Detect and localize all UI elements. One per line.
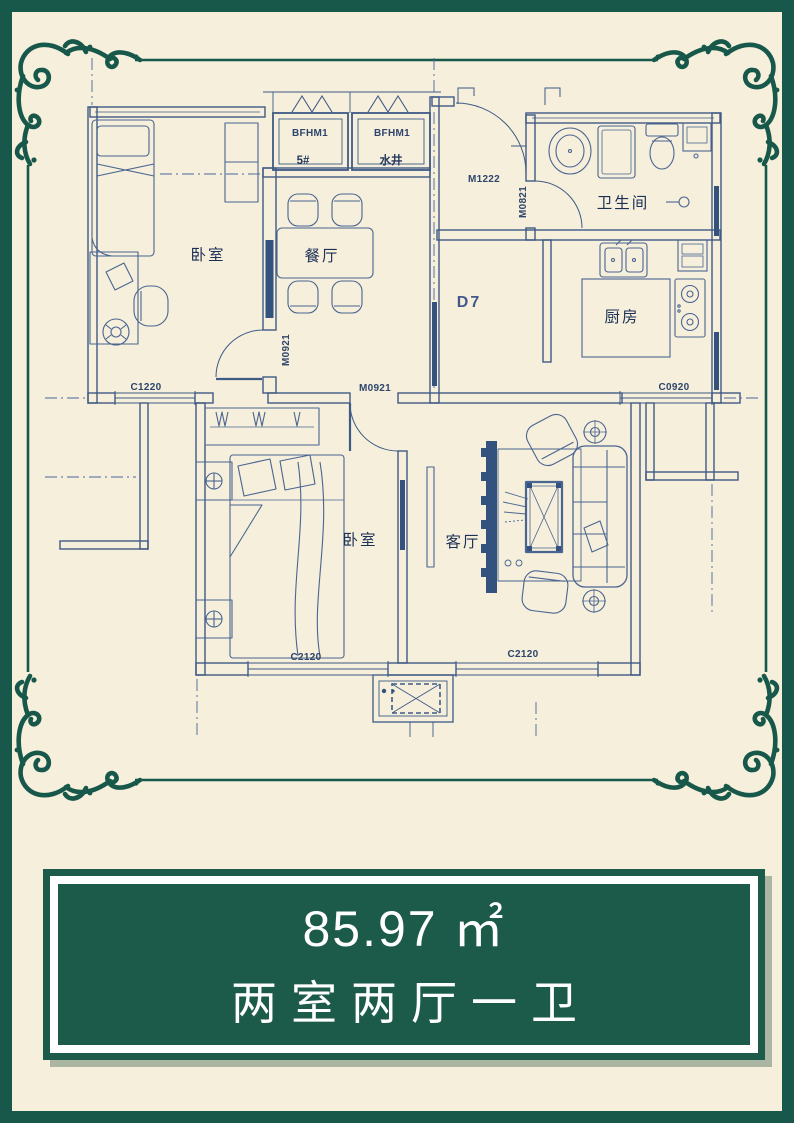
living-furniture [427,410,627,614]
double-bed [230,455,344,658]
dining-chair [332,194,362,226]
ac-platform [373,675,453,737]
door-code-bathroom: M0821 [518,186,529,218]
toilet [646,124,678,169]
washing-machine [683,123,711,158]
window-c2120-bedroom [248,661,388,677]
tv-console [427,467,434,567]
fridge [678,240,707,271]
bedside-table [196,462,232,500]
bedroom-bottom-door [350,403,398,451]
room-label-kitchen: 厨房 [604,308,639,326]
area-text: 85.97 ㎡ [302,904,505,954]
armchair [521,569,570,614]
bedroom-top-door [216,330,263,379]
room-label-bedroom-top: 卧室 [190,246,225,264]
wall-bathroom-left [526,115,535,181]
room-label-bathroom: 卫生间 [597,194,650,212]
shaft-left-name: 5# [297,155,310,167]
walls [60,88,740,675]
desk [90,252,168,345]
window-code-living: C2120 [508,649,539,660]
coffee-table [526,482,562,552]
throw-pillow [584,521,608,552]
window-code-left: C1220 [131,382,162,393]
bathroom-door-arc [535,181,582,228]
bedroom-bottom-furniture [196,408,344,658]
dining-chair [288,281,318,313]
shaft-left-label: BFHM1 [292,128,328,139]
window-code-kitchen: C0920 [659,382,690,393]
hanger-icon [216,412,228,426]
vent-zigzag-icon [368,96,408,112]
layout-text: 两室两厅一卫 [217,980,591,1026]
decor-sticks [503,492,528,566]
wall-bathroom-bottom [437,230,720,240]
wardrobe-bottom [205,408,319,445]
speaker-icon [582,589,606,613]
corner-flourish-icon [15,41,140,164]
floor-plan-poster: 卧室 餐厅 卫生间 厨房 卧室 客厅 BFHM1 5# BFHM1 水井 M12… [0,0,794,1123]
wall-kitchen-left [543,240,551,362]
hanger-icon [253,412,265,426]
corridor-label: D7 [457,294,481,311]
door-code-bedroom-bottom: M0921 [359,383,391,394]
floor-drain [666,197,689,207]
corner-flourish-icon [15,676,140,799]
dining-chair [332,281,362,313]
shower-tray [598,126,635,178]
single-bed [92,120,154,256]
bedside-table [196,600,232,638]
speaker-icon [583,420,607,444]
kitchen-fixtures [582,240,707,357]
entry-door-arc [456,103,526,173]
stove [675,279,705,337]
desk-chair [134,286,168,326]
shafts [263,92,441,177]
window-code-bedroom-bottom: C2120 [291,652,322,663]
info-box-content: 85.97 ㎡ 两室两厅一卫 [43,869,765,1060]
window-c1220 [115,391,195,405]
tv-media-wall [481,441,497,593]
vent-zigzag-icon [292,96,332,112]
corner-flourish-icon [654,676,779,799]
floor-plan: 卧室 餐厅 卫生间 厨房 卧室 客厅 BFHM1 5# BFHM1 水井 M12… [45,58,758,737]
hanger-icon [294,412,300,426]
shaft-right-name: 水井 [380,153,403,167]
window-c2120-living [456,661,598,677]
room-label-bedroom-bottom: 卧室 [342,531,377,549]
wash-basin [549,128,591,174]
dining-chair [288,194,318,226]
info-box: 85.97 ㎡ 两室两厅一卫 [43,869,765,1060]
door-code-bedroom-top: M0921 [281,334,292,366]
wall-lower-left [196,403,205,675]
wall-lower-right [631,403,640,675]
shaft-left-box [273,113,348,170]
double-sink [600,240,647,277]
window-c0920 [620,391,712,405]
wall-mid-band [398,393,622,403]
plan-labels: 卧室 餐厅 卫生间 厨房 卧室 客厅 BFHM1 5# BFHM1 水井 M12… [131,128,690,663]
bedroom-top-furniture [90,120,258,345]
wardrobe-top [225,123,258,202]
tilted-cushion [106,263,133,290]
shaft-right-label: BFHM1 [374,128,410,139]
room-label-dining: 餐厅 [304,247,339,265]
room-label-living: 客厅 [445,533,480,551]
door-code-entry: M1222 [468,174,500,185]
stool [103,319,129,345]
